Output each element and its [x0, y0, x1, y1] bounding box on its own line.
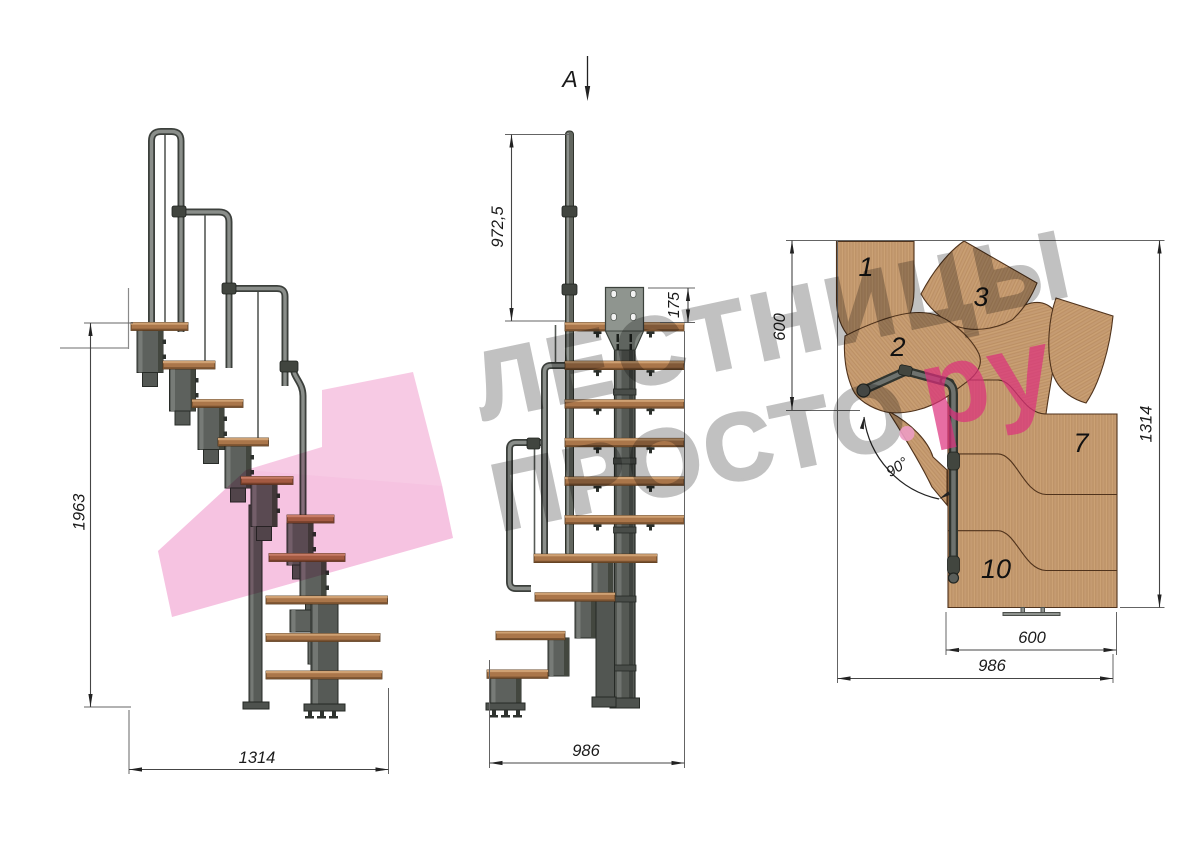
svg-text:A: A	[560, 66, 577, 92]
svg-text:986: 986	[572, 742, 600, 760]
svg-text:1314: 1314	[239, 749, 276, 767]
svg-text:1314: 1314	[1138, 406, 1156, 443]
svg-text:7: 7	[1073, 428, 1089, 458]
svg-text:1963: 1963	[71, 493, 89, 531]
svg-text:972,5: 972,5	[489, 206, 507, 248]
svg-text:600: 600	[1018, 629, 1046, 647]
svg-text:986: 986	[978, 657, 1006, 675]
svg-text:10: 10	[981, 554, 1011, 584]
